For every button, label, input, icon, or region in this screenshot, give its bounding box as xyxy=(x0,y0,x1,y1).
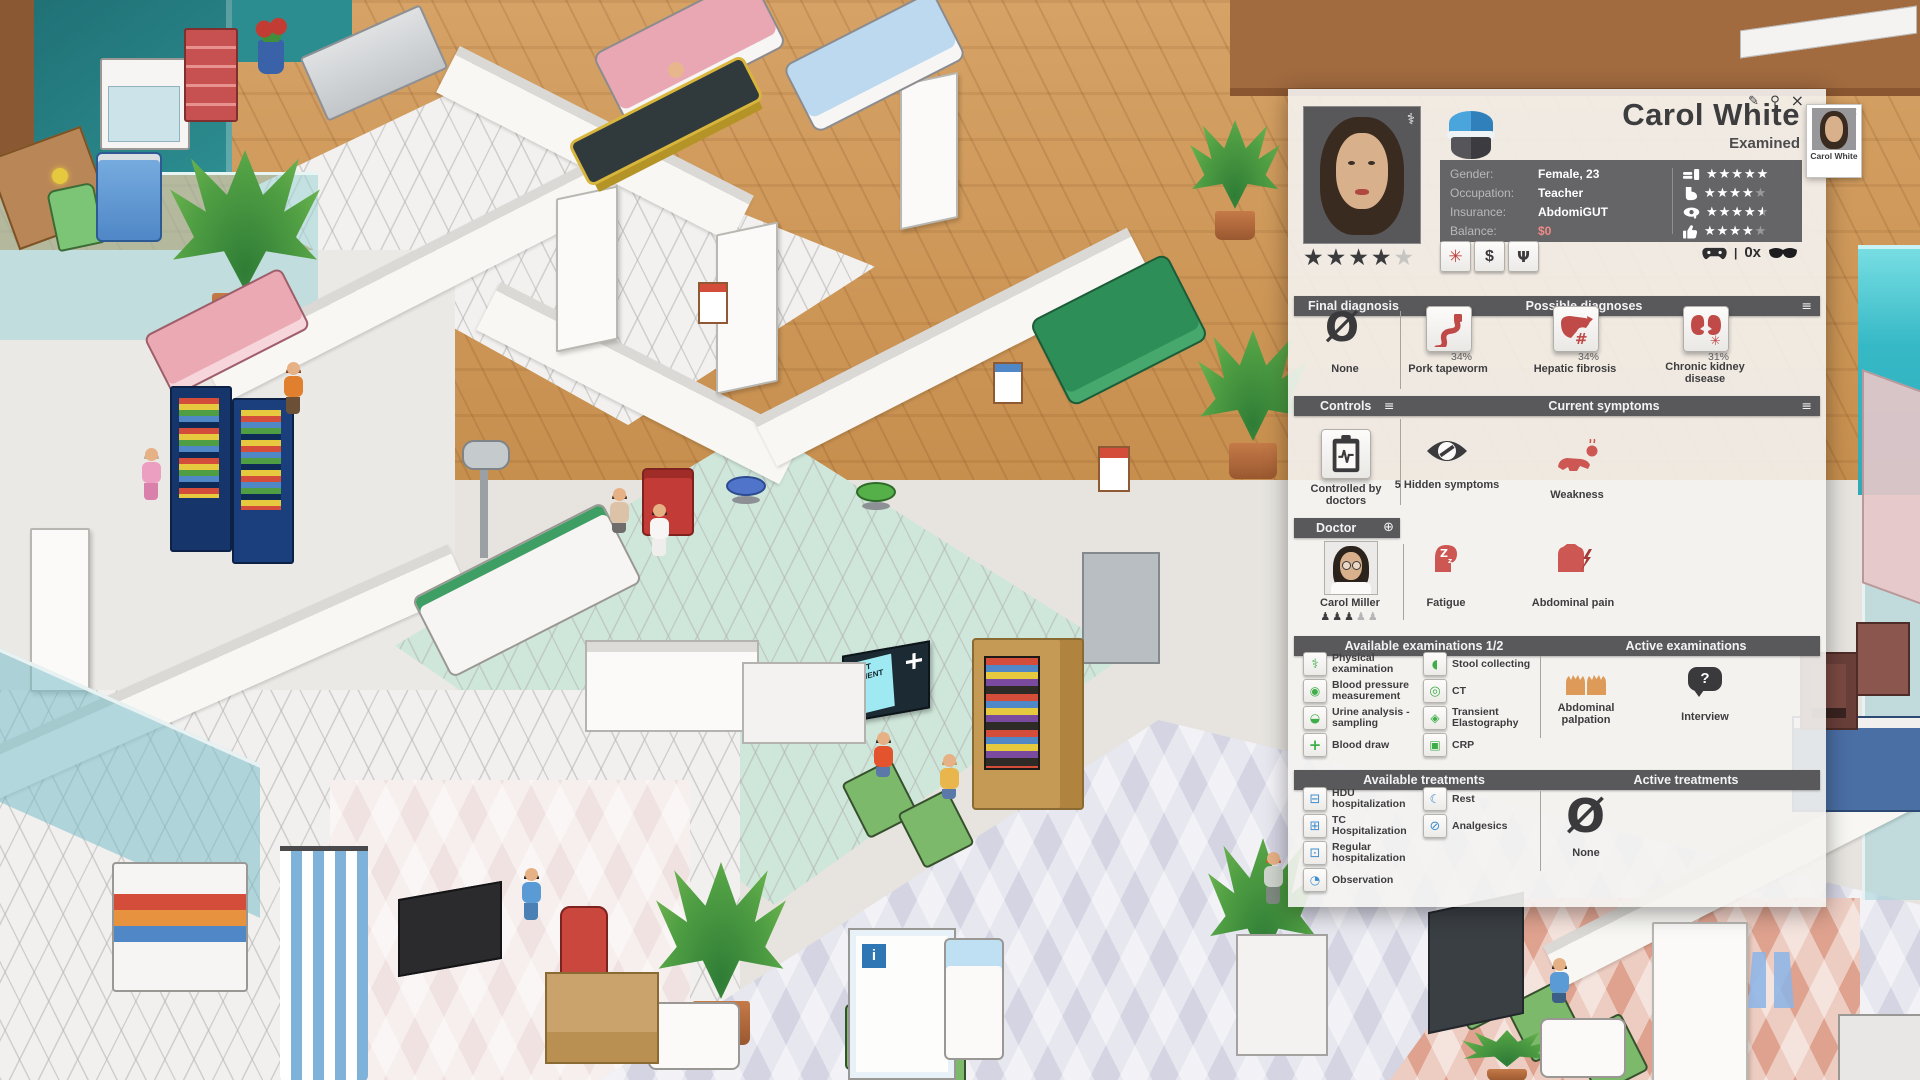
occupation-label: Occupation: xyxy=(1450,186,1514,200)
patient-avatar: ⚕ xyxy=(1303,106,1421,244)
potted-plant[interactable] xyxy=(1462,1030,1552,1080)
active-examinations-header: Active examinations xyxy=(1560,639,1812,653)
poster xyxy=(993,362,1023,404)
toilet-icon xyxy=(1683,187,1698,201)
balance-label: Balance: xyxy=(1450,224,1497,238)
gamepad-counter: 0x xyxy=(1744,244,1761,261)
toilet-stars: ★★★★★★★★★★ xyxy=(1704,187,1767,200)
surgeon-mask-icon xyxy=(1443,111,1499,161)
analgesics-icon: ⊘ xyxy=(1423,814,1447,838)
active-exam-abdominal-palpation-icon[interactable] xyxy=(1564,671,1608,700)
water-cooler[interactable] xyxy=(944,938,1004,1060)
add-doctor-icon[interactable]: ⊕ xyxy=(1383,520,1394,535)
doctor-avatar[interactable] xyxy=(1324,541,1378,595)
mask-icon[interactable] xyxy=(1768,246,1798,260)
svg-text:z: z xyxy=(1448,557,1452,565)
mirror-panel xyxy=(1428,892,1524,1034)
patient-status: Examined xyxy=(1729,135,1800,152)
doctor-header: Doctor xyxy=(1316,521,1356,535)
door[interactable] xyxy=(556,185,618,352)
exam-urine-analysis[interactable]: ◒ Urine analysis - sampling xyxy=(1303,706,1423,730)
treatment-observation[interactable]: ◔ Observation xyxy=(1303,868,1423,892)
observation-icon: ◔ xyxy=(1303,868,1327,892)
utility-machine[interactable] xyxy=(1838,1014,1920,1080)
diagnosis-hepatic-fibrosis[interactable]: # xyxy=(1553,306,1599,352)
symptom-fatigue-icon[interactable]: Zz xyxy=(1428,539,1464,576)
symptom-weakness-icon[interactable] xyxy=(1554,439,1600,474)
drawer-cart[interactable] xyxy=(112,862,248,992)
vending-machine-blue[interactable] xyxy=(232,398,294,564)
counter xyxy=(585,640,759,732)
doctor-examining[interactable] xyxy=(648,508,670,556)
symptom-abdominal-pain-icon[interactable] xyxy=(1552,539,1594,576)
diagnosis-probability: 34% xyxy=(1422,351,1472,363)
diagnosis-pork-tapeworm[interactable] xyxy=(1426,306,1472,352)
hunger-stars: ★★★★★★★★★★ xyxy=(1706,168,1769,181)
blood-pressure-icon: ◉ xyxy=(1303,679,1327,703)
examination-lamp-head xyxy=(462,440,510,470)
mini-card-name: Carol White xyxy=(1807,152,1861,161)
insurance-label: Insurance: xyxy=(1450,205,1506,219)
diagnosis-label: Pork tapeworm xyxy=(1393,363,1503,375)
waiting-man-blue[interactable] xyxy=(1548,962,1570,1003)
doctor-header-bar: Doctor ⊕ xyxy=(1294,518,1400,538)
exam-blood-pressure[interactable]: ◉ Blood pressure measurement xyxy=(1303,679,1423,703)
info-icon: i xyxy=(862,944,886,968)
active-exam-interview-icon[interactable]: ? xyxy=(1688,667,1722,691)
gender-label: Gender: xyxy=(1450,167,1493,181)
receptionist-doctor-blue[interactable] xyxy=(520,872,542,920)
controlled-by-doctors-button[interactable] xyxy=(1321,429,1371,479)
vending-machine-blue[interactable] xyxy=(170,386,232,552)
diagnosis-label: Chronic kidney disease xyxy=(1650,361,1760,385)
balance-value: $0 xyxy=(1538,224,1551,238)
gender-value: Female, 23 xyxy=(1538,167,1599,181)
stool-blue[interactable] xyxy=(726,476,766,496)
red-drawer-cart[interactable] xyxy=(184,28,238,122)
treatment-rest[interactable]: ☾ Rest xyxy=(1423,787,1543,811)
close-icon[interactable]: × xyxy=(1791,94,1804,109)
hdu-icon: ⊟ xyxy=(1303,787,1327,811)
patient-being-examined[interactable] xyxy=(608,492,630,533)
available-treatments-header: Available treatments xyxy=(1294,773,1554,787)
stool-collecting-icon: ◖ xyxy=(1423,652,1447,676)
tc-icon: ⊞ xyxy=(1303,814,1327,838)
active-exam-interview-label: Interview xyxy=(1655,711,1755,723)
exam-blood-draw[interactable]: + Blood draw xyxy=(1303,733,1423,757)
available-examinations-header: Available examinations 1/2 xyxy=(1294,639,1554,653)
thumbs-up-icon xyxy=(1683,225,1698,239)
red-office-chair[interactable] xyxy=(560,906,608,976)
sink[interactable] xyxy=(648,1002,740,1070)
need-row-mood: ★★★★★★★★★★ xyxy=(1683,222,1795,241)
urine-analysis-icon: ◒ xyxy=(1303,706,1327,730)
patient-info-panel: ✎ ⚲ × ⚕ Carol White Examined Gender: Fem… xyxy=(1288,89,1826,907)
current-symptoms-header: Current symptoms xyxy=(1484,399,1724,413)
potted-plant[interactable] xyxy=(1190,120,1280,240)
list-icon[interactable]: ≡ xyxy=(1384,398,1394,413)
share-button[interactable]: Ψ xyxy=(1508,241,1539,272)
svg-text:✳: ✳ xyxy=(1710,334,1721,347)
vending-machine-snack[interactable] xyxy=(972,638,1084,810)
need-row-hunger: ★★★★★★★★★★ xyxy=(1683,165,1795,184)
regular-hospitalization-icon: ⊡ xyxy=(1303,841,1327,865)
svg-text:Z: Z xyxy=(1440,547,1448,560)
standing-woman-redhair[interactable] xyxy=(1262,856,1284,904)
patient-mini-card[interactable]: × Carol White xyxy=(1806,104,1862,178)
gamepad-icon xyxy=(1702,245,1727,260)
emergency-button[interactable]: ✳ xyxy=(1440,241,1471,272)
speaker-brown[interactable] xyxy=(1856,622,1910,696)
waiting-woman-yellow[interactable] xyxy=(938,758,960,799)
none-diagnosis-icon: Ø xyxy=(1325,305,1359,351)
restroom-sink[interactable] xyxy=(1540,1018,1626,1078)
kiosk[interactable] xyxy=(1236,934,1328,1056)
stool-green[interactable] xyxy=(856,482,896,502)
occupation-value: Teacher xyxy=(1538,186,1583,200)
final-diagnosis-none-label: None xyxy=(1295,363,1395,375)
medicine-fridge-glass xyxy=(108,86,180,142)
poster xyxy=(1098,446,1130,492)
pink-screen xyxy=(1862,369,1920,605)
controls-header: Controls xyxy=(1320,399,1371,413)
hidden-symptoms-label: 5 Hidden symptoms xyxy=(1391,479,1503,491)
storage-boxes[interactable] xyxy=(545,972,659,1064)
eye-icon xyxy=(1683,207,1700,219)
symptom-weakness-label: Weakness xyxy=(1521,489,1633,501)
exam-transient-elastography[interactable]: ◈ Transient Elastography xyxy=(1423,706,1543,730)
diagnosis-probability: 34% xyxy=(1549,351,1599,363)
treatment-analgesics[interactable]: ⊘ Analgesics xyxy=(1423,814,1543,838)
game-screen: NEXT PATIENT i xyxy=(0,0,1920,1080)
wood-wall-top-right xyxy=(1230,0,1920,96)
need-row-pain: ★★★★★★★★★★ xyxy=(1683,203,1795,222)
doctor-skill-level: ♟♟♟♟♟ xyxy=(1294,610,1406,623)
medical-cabinet[interactable] xyxy=(1082,552,1160,664)
ct-icon: ◎ xyxy=(1423,679,1447,703)
diagnosis-chronic-kidney-disease[interactable]: ✳ xyxy=(1683,306,1729,352)
controlled-by-doctors-label: Controlled by doctors xyxy=(1290,483,1402,507)
door[interactable] xyxy=(900,72,958,230)
blood-draw-icon: + xyxy=(1303,733,1327,757)
waiting-man-red[interactable] xyxy=(872,736,894,777)
diagnosis-label: Hepatic fibrosis xyxy=(1520,363,1630,375)
medical-cross-icon xyxy=(906,652,922,671)
patient-rating-stars: ★★★★★★★★★★ xyxy=(1303,247,1416,270)
edit-icon[interactable]: ✎ xyxy=(1748,94,1759,109)
counter xyxy=(742,662,866,744)
nurse-pink[interactable] xyxy=(140,452,162,500)
controls-symptoms-header-bar: Controls ≡ Current symptoms ≡ xyxy=(1294,396,1820,416)
symptom-abdominal-pain-label: Abdominal pain xyxy=(1517,597,1629,609)
crp-icon: ▣ xyxy=(1423,733,1447,757)
restroom-door[interactable] xyxy=(1652,922,1748,1080)
mood-stars: ★★★★★★★★★★ xyxy=(1704,225,1767,238)
food-icon xyxy=(1683,168,1700,181)
treatment-hdu-hospitalization[interactable]: ⊟ HDU hospitalization xyxy=(1303,787,1423,811)
caduceus-icon: ⚕ xyxy=(1407,110,1415,128)
walking-patient-orange[interactable] xyxy=(282,366,304,414)
hidden-symptoms-icon[interactable] xyxy=(1426,437,1468,468)
flower-pot[interactable] xyxy=(258,40,284,74)
treatment-tc-hospitalization[interactable]: ⊞ TC Hospitalization xyxy=(1303,814,1423,838)
pain-stars: ★★★★★★★★★★ xyxy=(1706,206,1769,219)
exam-physical-examination[interactable]: ⚕ Physical examination xyxy=(1303,652,1423,676)
none-treatment-icon: Ø xyxy=(1566,789,1605,843)
treatment-regular-hospitalization[interactable]: ⊡ Regular hospitalization xyxy=(1303,841,1423,865)
exam-crp[interactable]: ▣ CRP xyxy=(1423,733,1543,757)
blue-bin[interactable] xyxy=(96,152,162,242)
patient-info-box: Gender: Female, 23 Occupation: Teacher I… xyxy=(1440,160,1802,242)
symptom-fatigue-label: Fatigue xyxy=(1390,597,1502,609)
active-treatments-header: Active treatments xyxy=(1560,773,1812,787)
need-row-toilet: ★★★★★★★★★★ xyxy=(1683,184,1795,203)
physical-examination-icon: ⚕ xyxy=(1303,652,1327,676)
payment-button[interactable]: $ xyxy=(1474,241,1505,272)
separator: | xyxy=(1734,246,1737,260)
red-flowers xyxy=(254,16,288,42)
active-treatment-none-label: None xyxy=(1536,847,1636,859)
poster xyxy=(698,282,728,324)
rest-icon: ☾ xyxy=(1423,787,1447,811)
exam-ct[interactable]: ◎ CT xyxy=(1423,679,1543,703)
list-icon[interactable]: ≡ xyxy=(1802,298,1812,313)
list-icon[interactable]: ≡ xyxy=(1802,398,1812,413)
insurance-value: AbdomiGUT xyxy=(1538,205,1608,219)
restroom-floor-figures xyxy=(1748,952,1794,1008)
mini-avatar xyxy=(1812,108,1856,150)
elastography-icon: ◈ xyxy=(1423,706,1447,730)
patient-in-bed-head[interactable] xyxy=(668,62,684,78)
desk-lamp xyxy=(52,168,68,184)
svg-text:#: # xyxy=(1575,330,1588,347)
pin-icon[interactable]: ⚲ xyxy=(1770,94,1780,109)
curtain-blue-striped[interactable] xyxy=(280,846,368,1080)
exam-stool-collecting[interactable]: ◖ Stool collecting xyxy=(1423,652,1543,676)
active-exam-abdominal-palpation-label: Abdominal palpation xyxy=(1536,702,1636,726)
